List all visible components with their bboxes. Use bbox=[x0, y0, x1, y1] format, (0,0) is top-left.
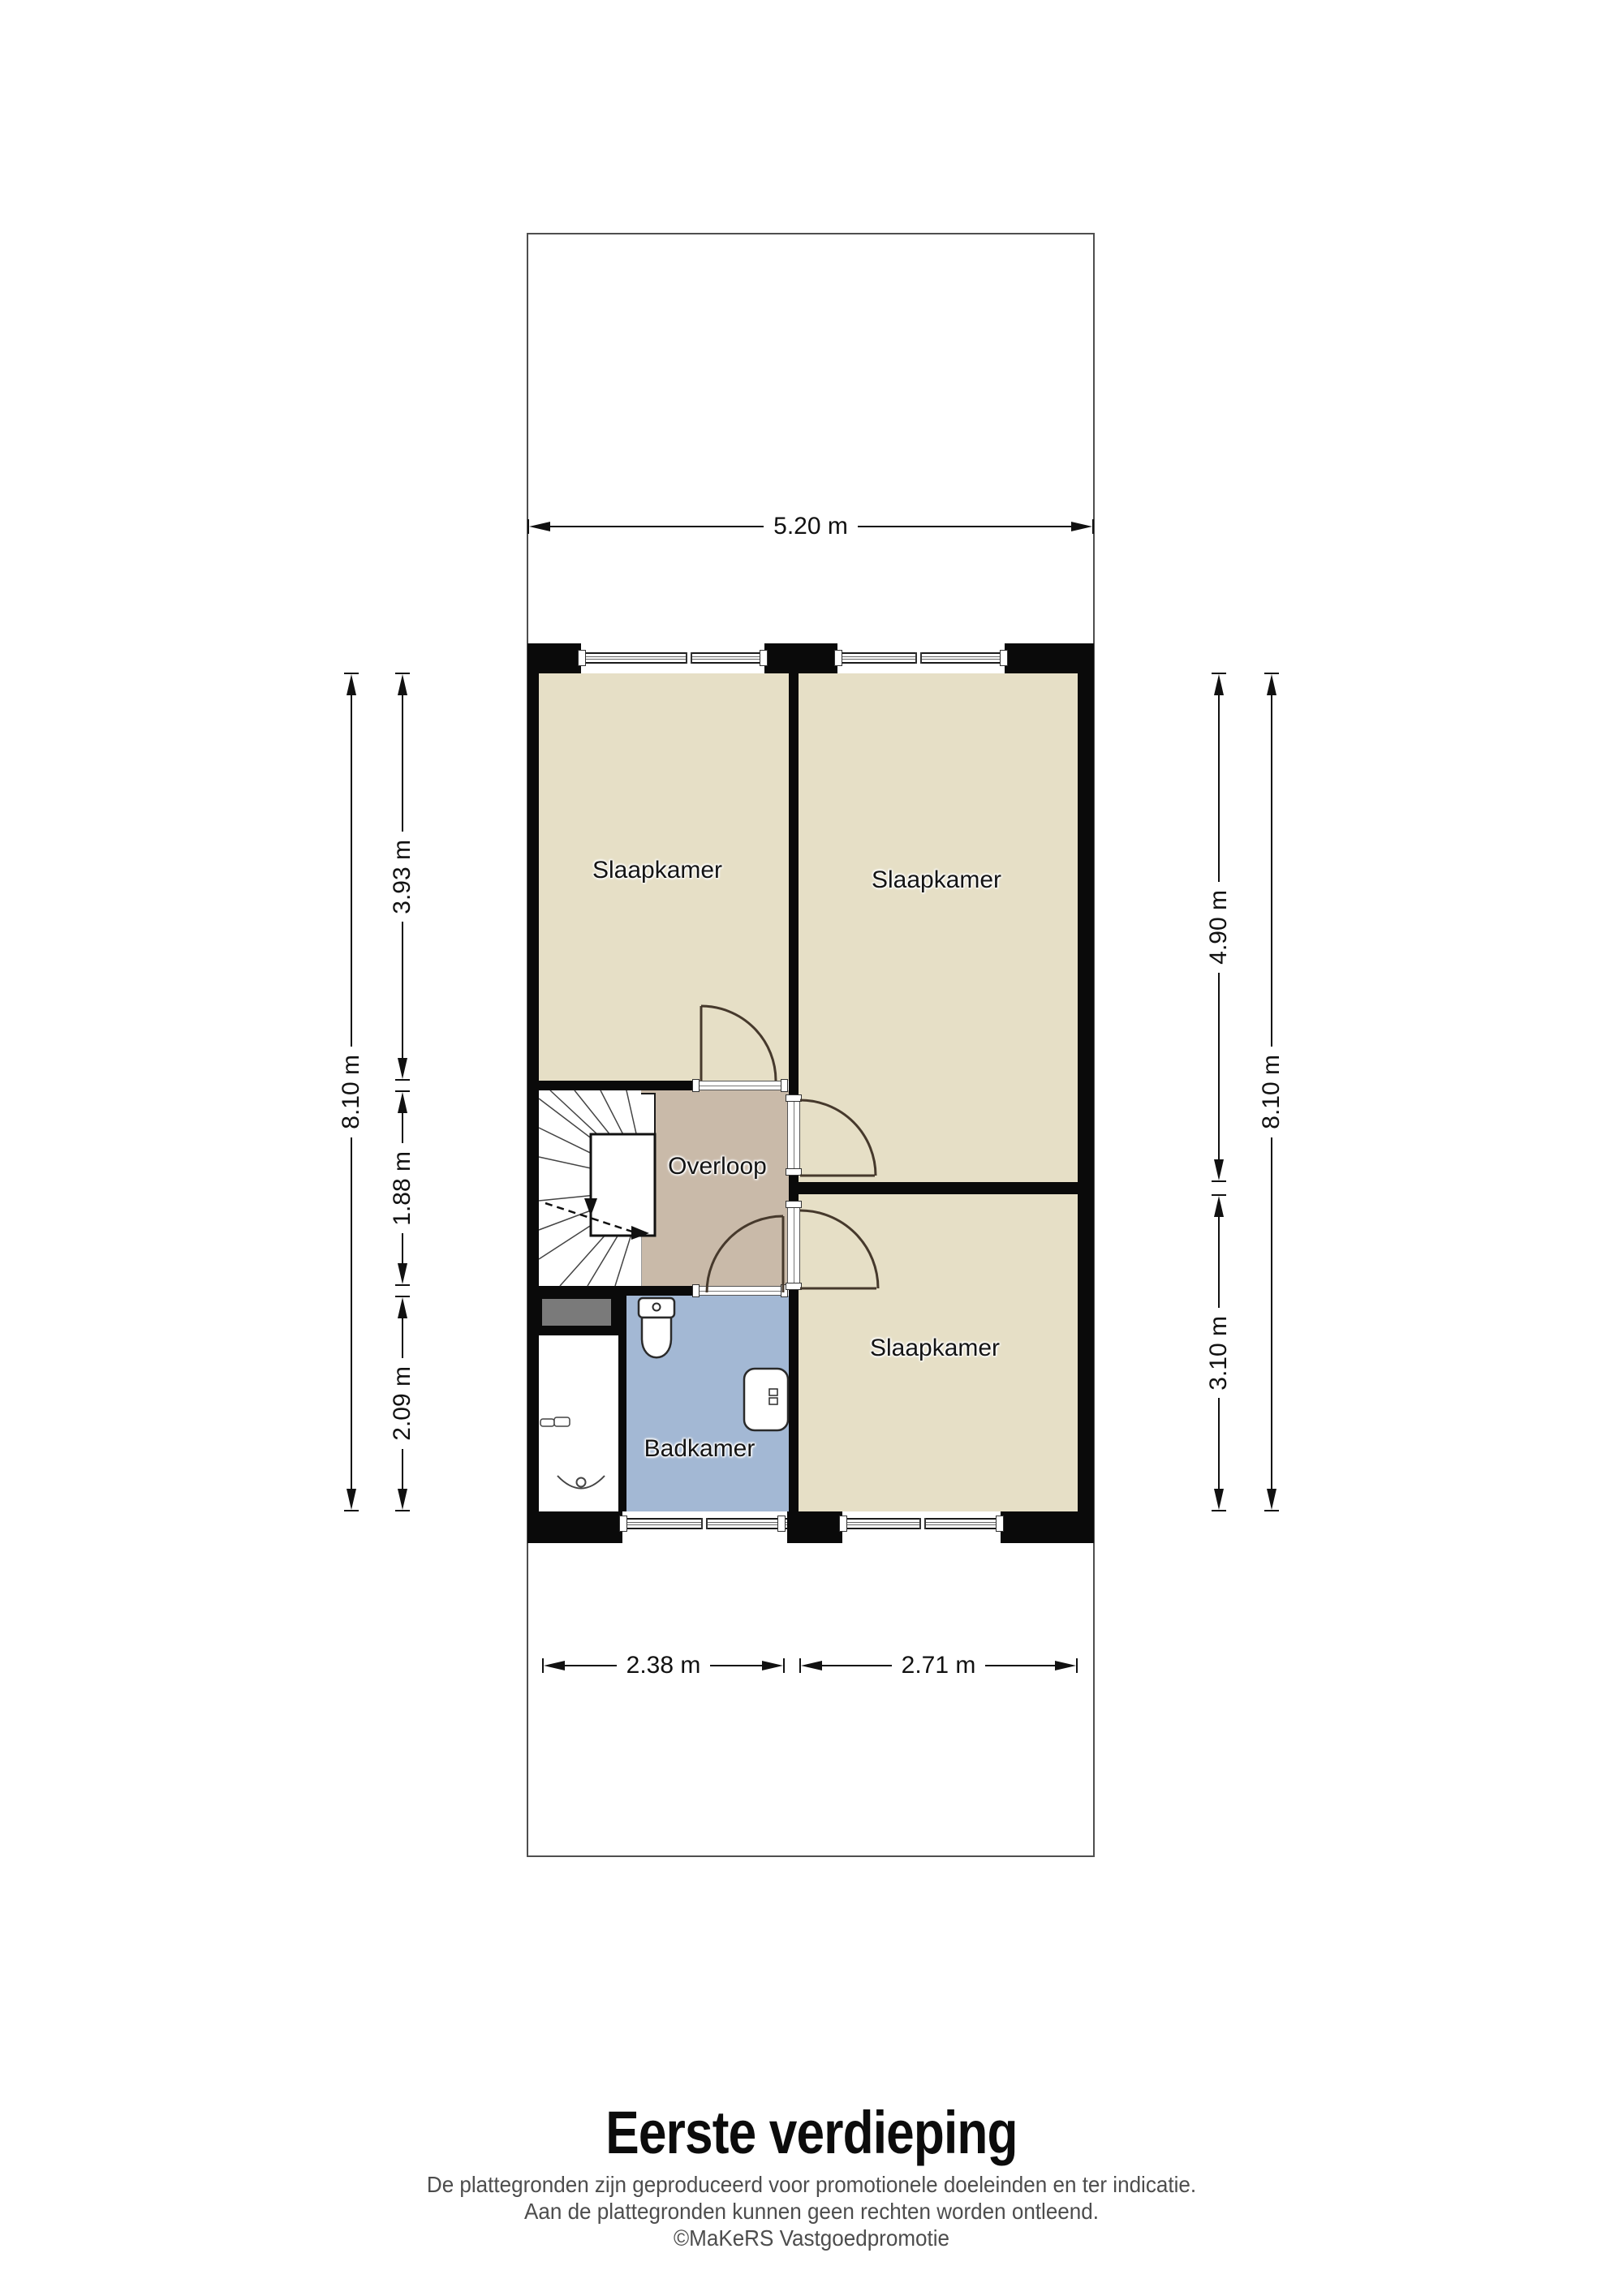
wall-right bbox=[1078, 643, 1094, 1543]
footer-disclaimer: De plattegronden zijn geproduceerd voor … bbox=[57, 2171, 1566, 2251]
doorway-bedroom1 bbox=[695, 1081, 787, 1090]
window-jamb bbox=[839, 1516, 847, 1532]
window-mullion bbox=[701, 1518, 708, 1529]
room-label-slaapkamer-1: Slaapkamer bbox=[592, 857, 722, 884]
door-jamb bbox=[786, 1094, 802, 1102]
dimension-bottom-right: 2.71 m bbox=[799, 1653, 1078, 1678]
room-label-overloop: Overloop bbox=[668, 1153, 767, 1180]
window-mullion bbox=[686, 652, 692, 664]
door-jamb bbox=[786, 1283, 802, 1290]
dimension-left-total: 8.10 m bbox=[339, 673, 364, 1511]
shower-room bbox=[539, 1335, 618, 1511]
window-mullion bbox=[915, 652, 922, 664]
dimension-label: 8.10 m bbox=[1258, 1047, 1285, 1137]
dimension-right-bottom: 3.10 m bbox=[1207, 1194, 1231, 1511]
stair-landing-notch bbox=[641, 1093, 656, 1174]
wall-between-right-bedrooms bbox=[799, 1182, 1078, 1194]
floorplan-page: Slaapkamer Slaapkamer Slaapkamer Overloo… bbox=[0, 0, 1623, 2296]
dimension-right-total: 8.10 m bbox=[1259, 673, 1284, 1511]
room-overloop bbox=[641, 1090, 789, 1286]
dimension-left-top: 3.93 m bbox=[390, 673, 415, 1081]
wall-top-pier-middle bbox=[764, 643, 837, 673]
dimension-label: 3.10 m bbox=[1205, 1308, 1233, 1399]
door-jamb bbox=[781, 1079, 788, 1092]
wall-hall-bathroom bbox=[539, 1286, 695, 1296]
dimension-left-bottom: 2.09 m bbox=[390, 1296, 415, 1511]
window bbox=[581, 652, 764, 664]
window-mullion bbox=[919, 1518, 926, 1529]
door-jamb bbox=[786, 1201, 802, 1208]
wall-bedroom1-hall bbox=[539, 1081, 695, 1090]
dimension-label: 3.93 m bbox=[389, 832, 416, 922]
room-badkamer bbox=[626, 1296, 789, 1511]
wall-center-vertical-upper bbox=[789, 673, 799, 1097]
doorway-bedroom3 bbox=[787, 1203, 800, 1288]
window-jamb bbox=[578, 650, 586, 666]
window-jamb bbox=[619, 1516, 627, 1532]
dimension-label: 2.71 m bbox=[892, 1652, 986, 1679]
wall-center-vertical-lower bbox=[789, 1288, 799, 1511]
wall-center-vertical-mid bbox=[789, 1174, 799, 1203]
dimension-label: 8.10 m bbox=[338, 1047, 365, 1137]
dimension-label: 1.88 m bbox=[389, 1143, 416, 1234]
room-slaapkamer-top-right bbox=[799, 673, 1078, 1182]
door-jamb bbox=[692, 1284, 700, 1297]
dimension-bottom-left: 2.38 m bbox=[542, 1653, 785, 1678]
door-jamb bbox=[692, 1079, 700, 1092]
credit-line: ©MaKeRS Vastgoedpromotie bbox=[57, 2225, 1566, 2251]
wall-shower-bathroom bbox=[618, 1335, 626, 1511]
room-label-slaapkamer-2: Slaapkamer bbox=[872, 866, 1001, 894]
window-jamb bbox=[996, 1516, 1004, 1532]
wall-bottom-pier-left bbox=[527, 1511, 622, 1543]
door-jamb bbox=[786, 1168, 802, 1176]
room-label-slaapkamer-3: Slaapkamer bbox=[870, 1335, 1000, 1362]
room-label-badkamer: Badkamer bbox=[644, 1435, 756, 1463]
dimension-label: 2.09 m bbox=[389, 1358, 416, 1449]
disclaimer-line-1: De plattegronden zijn geproduceerd voor … bbox=[57, 2171, 1566, 2198]
wall-bottom-pier-middle bbox=[787, 1511, 842, 1543]
disclaimer-line-2: Aan de plattegronden kunnen geen rechten… bbox=[57, 2198, 1566, 2225]
dimension-label: 4.90 m bbox=[1205, 882, 1233, 973]
doorway-bedroom2 bbox=[787, 1097, 800, 1174]
window-jamb bbox=[1000, 650, 1008, 666]
doorway-bathroom bbox=[695, 1286, 787, 1296]
dimension-right-top: 4.90 m bbox=[1207, 673, 1231, 1182]
page-title: Eerste verdieping bbox=[130, 2098, 1493, 2167]
wall-bottom-pier-right bbox=[1001, 1511, 1094, 1543]
window-jamb bbox=[834, 650, 842, 666]
dimension-left-middle: 1.88 m bbox=[390, 1090, 415, 1286]
wall-left bbox=[527, 643, 539, 1543]
dimension-label: 2.38 m bbox=[617, 1652, 711, 1679]
window-jamb bbox=[760, 650, 768, 666]
stair-closet-block bbox=[542, 1299, 611, 1326]
stair-hall-edge bbox=[641, 1174, 642, 1286]
staircase-area bbox=[539, 1090, 641, 1286]
dimension-top-width: 5.20 m bbox=[527, 514, 1094, 539]
window-jamb bbox=[777, 1516, 786, 1532]
dimension-label: 5.20 m bbox=[764, 513, 858, 540]
